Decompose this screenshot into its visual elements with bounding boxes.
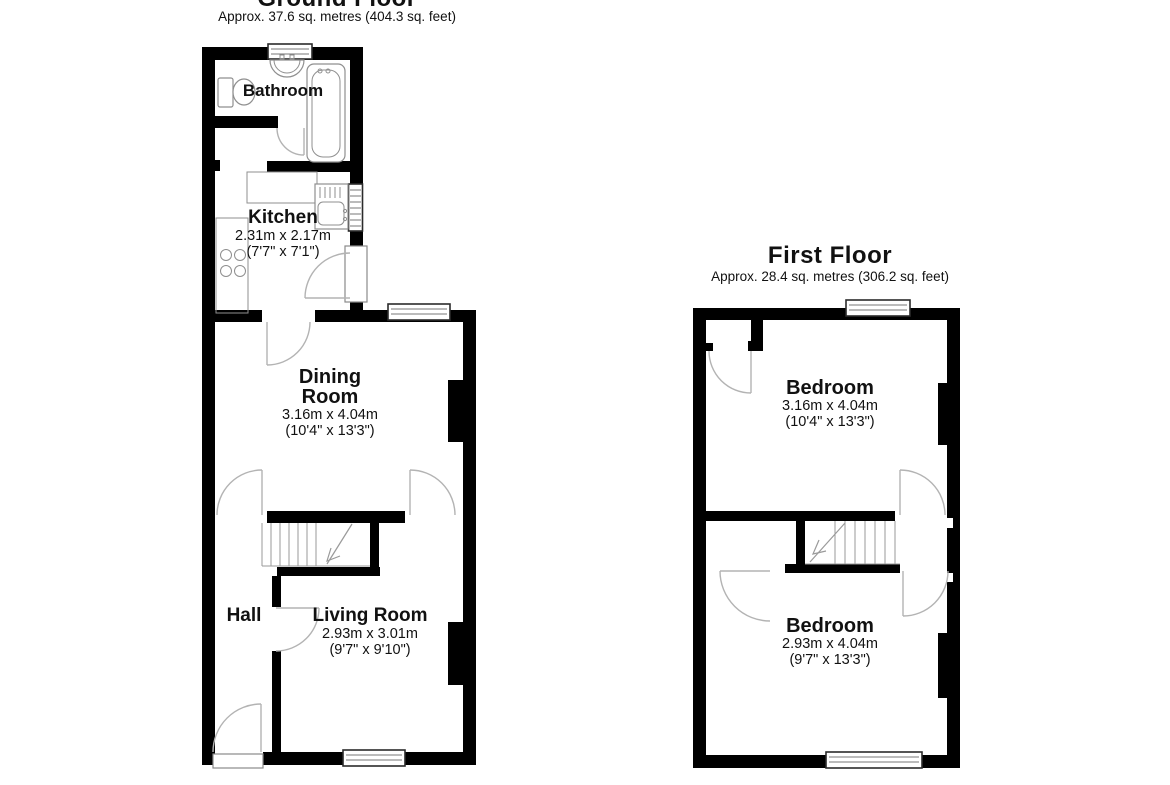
first-floor-plan (685, 290, 970, 775)
ground-floor-subtitle: Approx. 37.6 sq. metres (404.3 sq. feet) (187, 9, 487, 24)
dining-room-window (388, 304, 450, 320)
room-label-bathroom: Bathroom (223, 81, 343, 101)
room-label-bedroom1: Bedroom 3.16m x 4.04m (10'4" x 13'3") (770, 378, 890, 430)
room-label-hall: Hall (204, 606, 284, 626)
bedroom2-entry-door (720, 571, 770, 621)
bedroom1-landing-door (900, 470, 945, 515)
first-stairs (805, 521, 900, 564)
first-floor-title: First Floor (710, 242, 950, 270)
bathtub-fixture (307, 64, 345, 162)
chimney-breast-bedroom2 (938, 633, 960, 698)
room-label-kitchen: Kitchen 2.31m x 2.17m (7'7" x 7'1") (213, 208, 353, 260)
chimney-breast-bedroom1 (938, 383, 960, 445)
bedroom1-window (846, 300, 910, 316)
floorplan-page: Ground Floor Approx. 37.6 sq. metres (40… (0, 0, 1170, 785)
bedroom1-entry-door (709, 351, 751, 393)
chimney-breast-living (448, 622, 463, 685)
bathroom-door (277, 128, 304, 155)
living-room-window (343, 750, 405, 766)
first-floor-subtitle: Approx. 28.4 sq. metres (306.2 sq. feet) (680, 269, 980, 284)
room-label-living-room: Living Room 2.93m x 3.01m (9'7" x 9'10") (310, 606, 430, 658)
room-label-dining-room: Dining Room 3.16m x 4.04m (10'4" x 13'3"… (270, 367, 390, 439)
dining-corridor-door (410, 470, 455, 515)
room-label-bedroom2: Bedroom 2.93m x 4.04m (9'7" x 13'3") (770, 616, 890, 668)
ground-stairs (262, 523, 370, 566)
kitchen-dining-door (267, 322, 310, 365)
front-door (213, 704, 263, 768)
bedroom2-landing-door (903, 571, 948, 616)
chimney-breast-dining (448, 380, 463, 442)
dining-hall-door (217, 470, 262, 515)
bedroom2-window (826, 752, 922, 768)
